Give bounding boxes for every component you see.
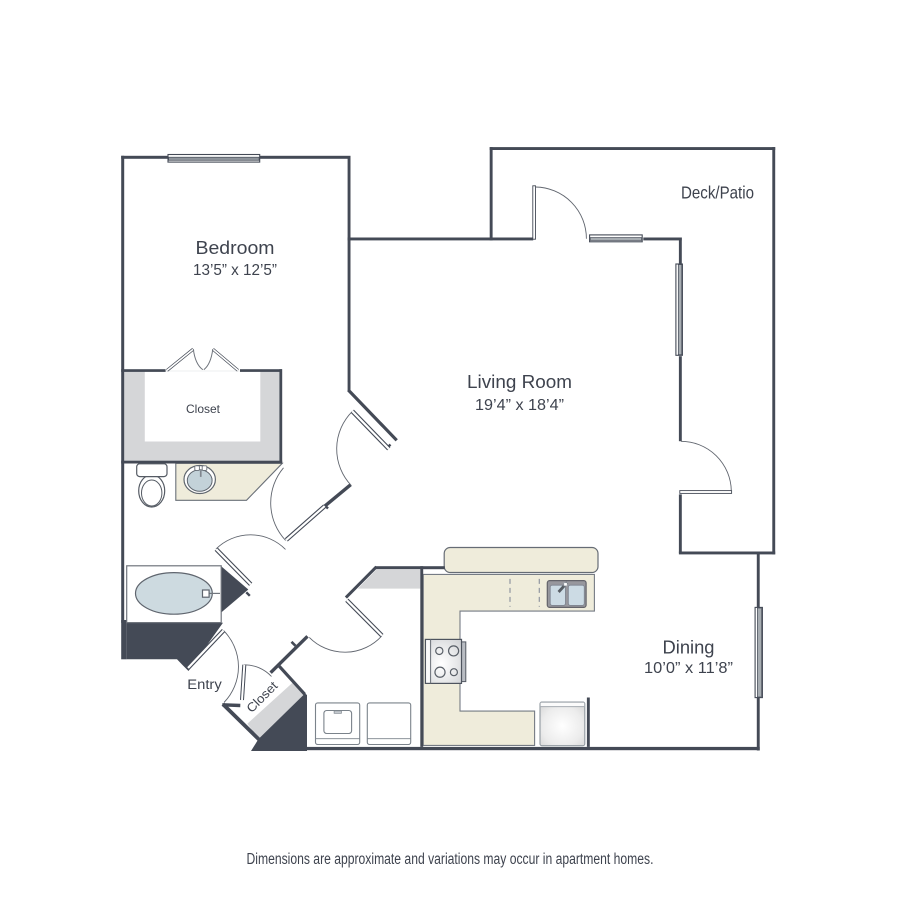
svg-text:13’5” x 12’5”: 13’5” x 12’5” — [193, 262, 277, 279]
svg-text:Dimensions are approximate and: Dimensions are approximate and variation… — [247, 851, 654, 868]
svg-text:Bedroom: Bedroom — [196, 238, 275, 258]
svg-text:Closet: Closet — [186, 402, 221, 416]
svg-text:Entry: Entry — [187, 677, 222, 692]
svg-text:19’4” x 18’4”: 19’4” x 18’4” — [475, 397, 564, 414]
svg-text:10’0” x 11’8”: 10’0” x 11’8” — [644, 660, 733, 677]
svg-text:Deck/Patio: Deck/Patio — [681, 183, 754, 203]
svg-text:Dining: Dining — [663, 638, 715, 658]
svg-text:Living Room: Living Room — [467, 371, 572, 392]
